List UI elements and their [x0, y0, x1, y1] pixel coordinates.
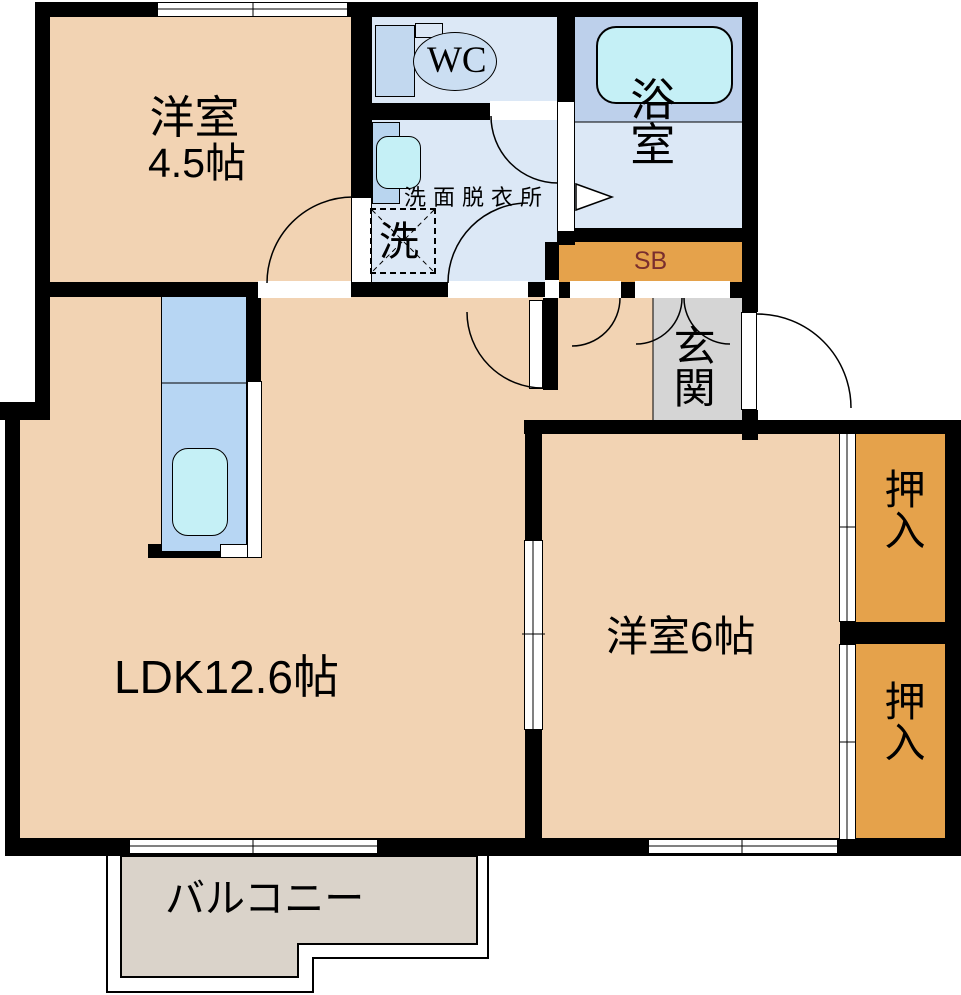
wall-left-upper [35, 2, 50, 420]
wall-kitchen-east [247, 296, 261, 381]
ldk-main-floor [20, 414, 525, 840]
bathroom-label: 浴室 [625, 76, 672, 166]
wall-washroom-south-a [351, 282, 448, 297]
hall-floor [558, 298, 653, 422]
ldk-label: LDK12.6帖 [114, 653, 339, 701]
kitchen-counter-edge-horizontal [220, 544, 248, 558]
hall-floor-gap [543, 390, 558, 422]
wall-closet-divider [840, 622, 947, 644]
wall-sb-south-post [621, 282, 635, 298]
closet-upper-sliding-door [839, 433, 856, 622]
bedroom-45-size-label: 4.5帖 [112, 142, 282, 185]
wall-top-right [347, 2, 758, 17]
toilet-tank [375, 25, 415, 97]
entrance-door-leaf [741, 312, 757, 410]
wall-wc-south [372, 103, 490, 120]
wall-bedroom6-north [524, 420, 948, 434]
wc-door-opening [490, 101, 557, 120]
wall-right-outer [945, 420, 961, 856]
bedroom45-window [157, 2, 348, 17]
ldk-upper-floor [50, 296, 543, 422]
washroom-door-opening [448, 281, 528, 298]
wall-bath-south [557, 228, 758, 242]
hall-door-leaf [529, 300, 543, 389]
bedroom6-window [648, 839, 838, 854]
wall-sb-south-b [730, 282, 742, 298]
wall-hall-west [543, 298, 558, 390]
wall-left-lower [5, 420, 20, 856]
hall-corner-opening [545, 280, 559, 298]
wall-left-step [0, 402, 50, 420]
kitchen-sink [172, 448, 228, 536]
washroom-label: 洗面脱衣所 [404, 186, 549, 209]
bedroom-45-name-label: 洋室 [112, 94, 277, 141]
laundry-label: 洗 [379, 221, 419, 263]
bedroom-6-label: 洋室6帖 [606, 615, 755, 659]
sb-door-opening [570, 281, 621, 298]
bedroom45-door-leaf [351, 197, 372, 283]
ldk-bedroom6-window [524, 540, 543, 730]
entrance-label: 玄関 [669, 324, 713, 408]
wall-washroom-south-b [528, 282, 545, 297]
wall-top-left [35, 2, 158, 17]
closet-upper-label: 押入 [879, 468, 922, 550]
bedroom45-door-opening [258, 281, 351, 298]
closet-lower-sliding-door [839, 644, 856, 840]
washbasin-bowl [376, 136, 421, 189]
closet-lower-label: 押入 [879, 680, 922, 762]
wall-sb-west [545, 242, 559, 282]
wall-bedroom45-south-a [35, 282, 258, 297]
wall-sb-south-a [559, 282, 570, 298]
shoe-box-label: SB [559, 248, 742, 274]
floor-plan: 洋室 4.5帖 LDK12.6帖 洋室6帖 浴室 WC 洗面脱衣所 洗 玄関 S… [0, 0, 961, 995]
entrance-inner-door-opening [635, 281, 730, 298]
ldk-balcony-window [129, 839, 378, 854]
wc-bath-door-leaf [557, 101, 575, 232]
kitchen-counter-edge-vertical [247, 381, 262, 558]
balcony-label: バルコニー [165, 878, 364, 920]
toilet-label: WC [427, 42, 487, 81]
